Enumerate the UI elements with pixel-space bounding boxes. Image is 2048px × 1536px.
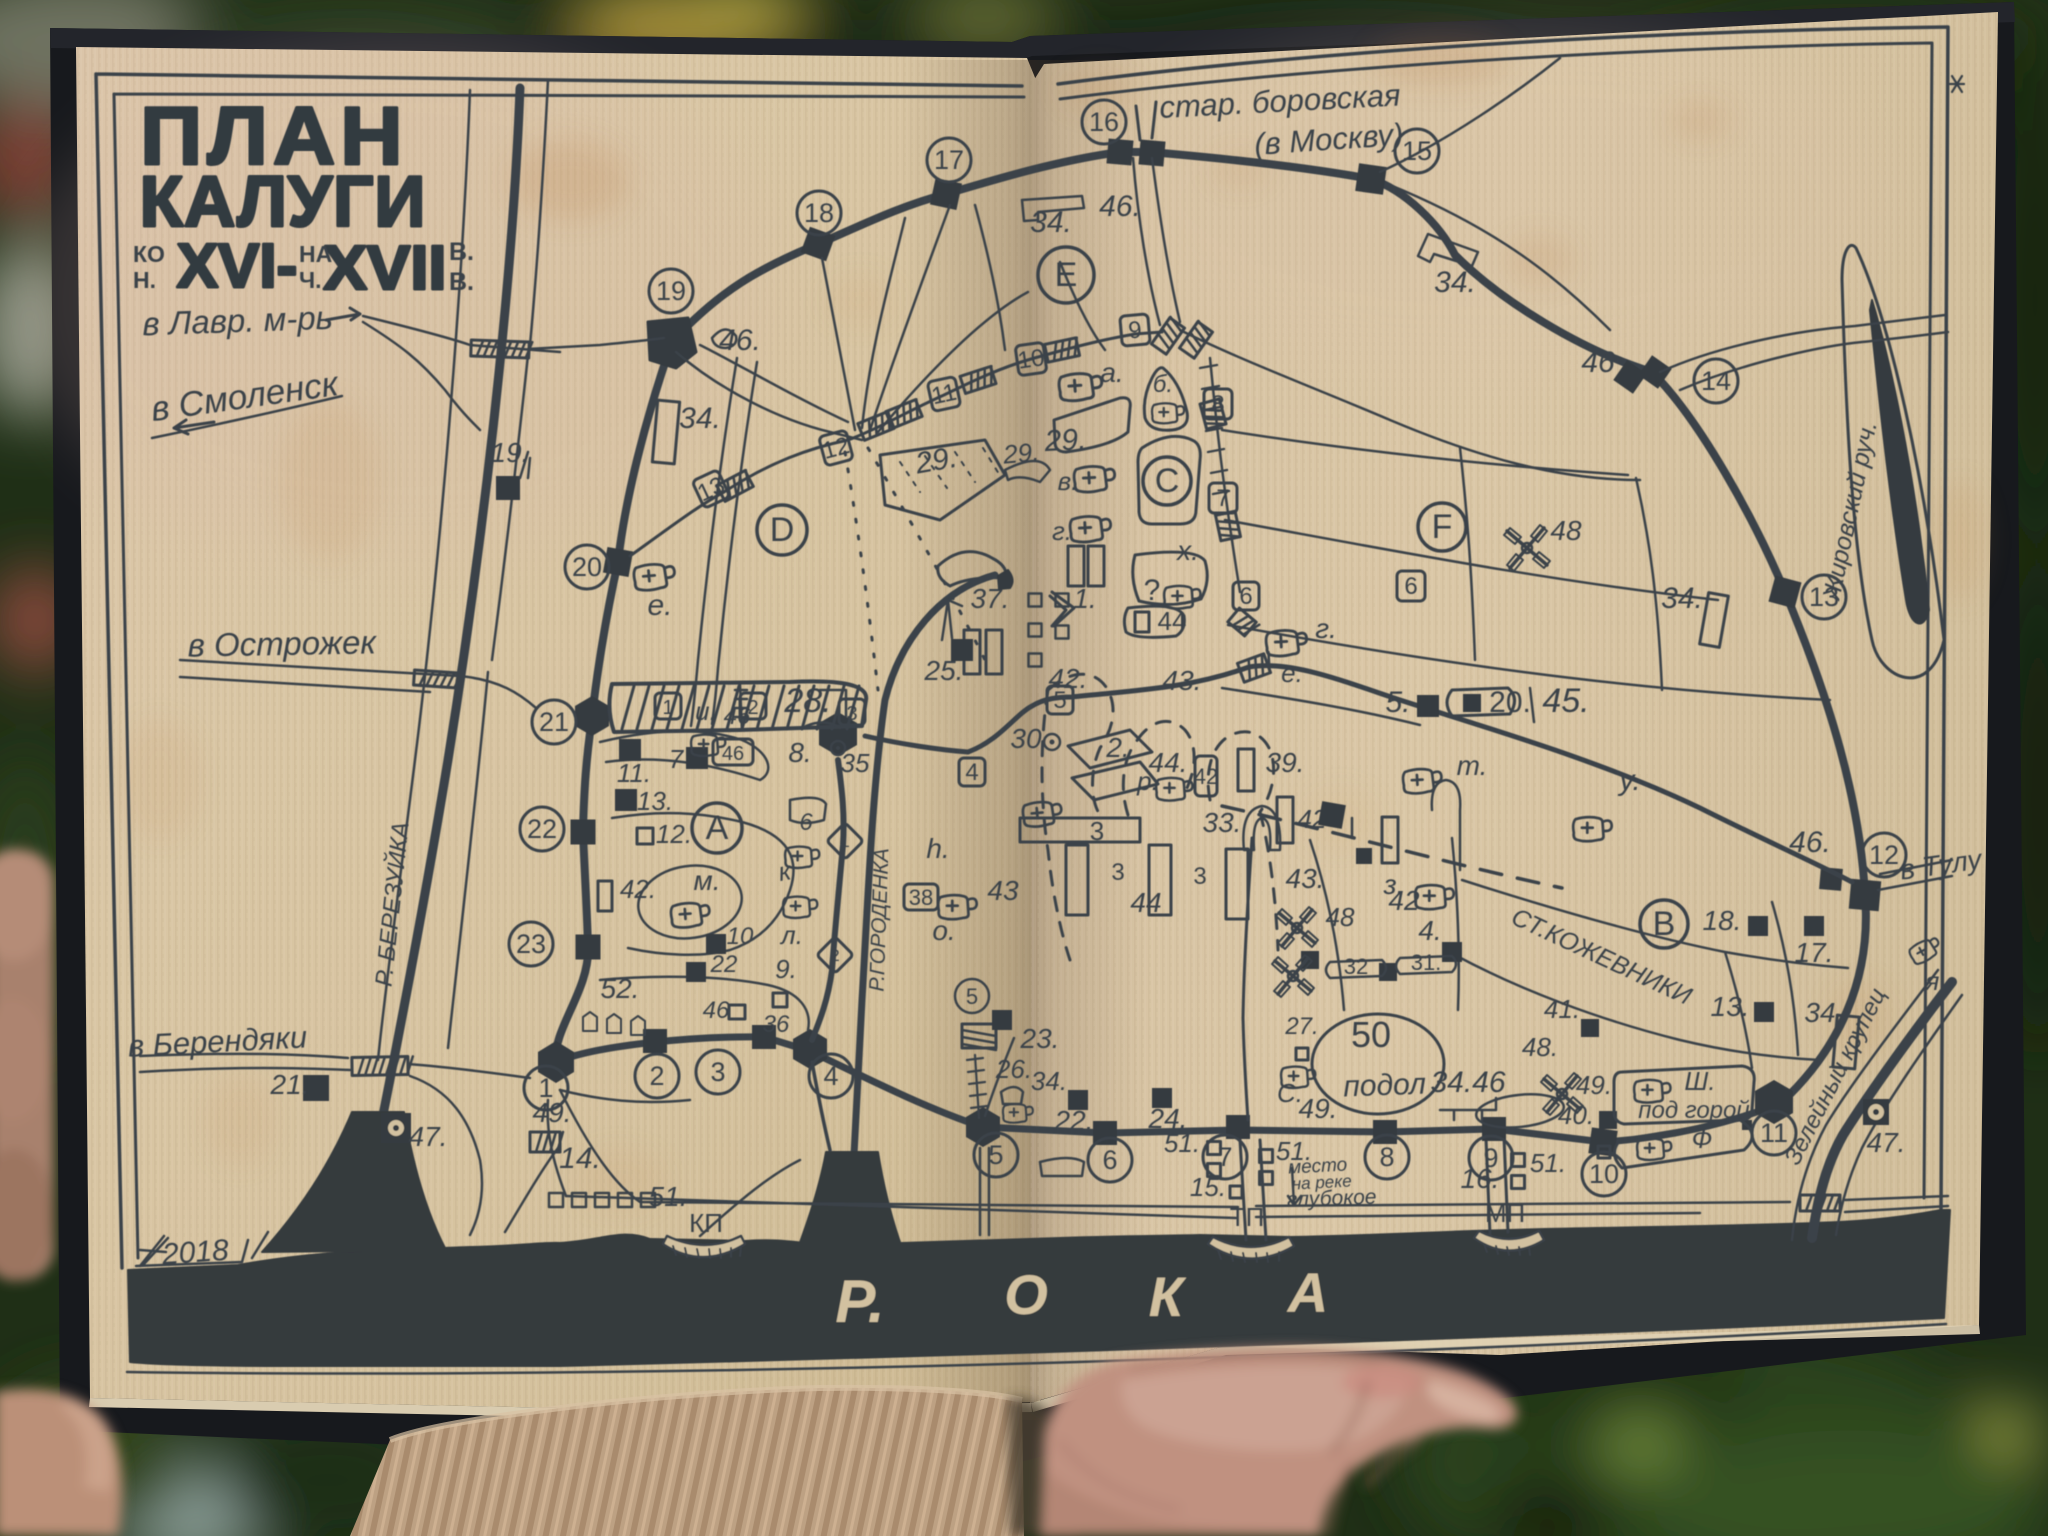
svg-text:51.: 51.	[1276, 1136, 1312, 1166]
svg-text:C: C	[1155, 462, 1180, 500]
svg-text:F: F	[1432, 508, 1453, 546]
svg-text:16.: 16.	[1461, 1163, 1500, 1194]
svg-text:44: 44	[1158, 606, 1187, 636]
svg-text:3: 3	[710, 1057, 725, 1087]
svg-text:л.: л.	[779, 920, 803, 950]
svg-text:МП: МП	[1485, 1198, 1525, 1228]
svg-text:27.: 27.	[1284, 1013, 1318, 1040]
svg-text:м.: м.	[694, 865, 721, 896]
svg-text:39.: 39.	[1266, 747, 1305, 778]
svg-text:А: А	[1286, 1261, 1328, 1324]
svg-text:5.: 5.	[1385, 686, 1410, 719]
svg-text:11: 11	[1760, 1118, 1788, 1148]
svg-text:а.: а.	[1100, 357, 1123, 388]
svg-text:7: 7	[669, 744, 685, 774]
svg-text:21: 21	[539, 707, 569, 737]
svg-text:51.: 51.	[1164, 1128, 1200, 1158]
svg-text:47.: 47.	[1867, 1127, 1906, 1158]
svg-text:12.: 12.	[656, 819, 692, 849]
svg-text:2: 2	[830, 946, 839, 965]
svg-text:8: 8	[1379, 1142, 1394, 1172]
svg-text:h.: h.	[926, 833, 949, 864]
svg-text:3: 3	[1193, 863, 1206, 890]
svg-text:23.: 23.	[1020, 1023, 1060, 1054]
svg-text:6: 6	[1102, 1145, 1117, 1175]
svg-text:15: 15	[1402, 136, 1432, 166]
svg-text:в Острожек: в Острожек	[187, 623, 377, 663]
svg-text:4: 4	[823, 1061, 838, 1091]
svg-text:20: 20	[572, 552, 602, 582]
svg-text:30: 30	[1010, 723, 1042, 754]
svg-text:18.: 18.	[1703, 905, 1742, 936]
svg-text:9: 9	[1127, 316, 1143, 344]
svg-text:25.: 25.	[924, 655, 964, 686]
svg-text:45.: 45.	[1542, 682, 1589, 720]
svg-text:Ш.: Ш.	[1684, 1066, 1715, 1096]
svg-text:29.: 29.	[1001, 437, 1041, 470]
svg-text:49.: 49.	[1299, 1093, 1338, 1124]
svg-text:17: 17	[934, 145, 964, 175]
svg-text:22: 22	[527, 814, 557, 844]
svg-text:9.: 9.	[775, 954, 797, 984]
svg-text:НА: НА	[299, 241, 332, 267]
svg-text:5: 5	[1053, 687, 1066, 714]
svg-text:К: К	[1149, 1265, 1187, 1328]
svg-text:Р.: Р.	[835, 1268, 884, 1335]
svg-text:14.: 14.	[559, 1142, 601, 1175]
svg-text:21.: 21.	[270, 1069, 310, 1100]
svg-text:7: 7	[1216, 485, 1229, 512]
svg-text:4: 4	[965, 759, 978, 786]
svg-text:4.: 4.	[1418, 915, 1441, 946]
svg-text:48: 48	[1326, 902, 1355, 932]
svg-text:17.: 17.	[1795, 937, 1834, 968]
svg-text:28.: 28.	[783, 682, 831, 720]
svg-text:15.: 15.	[1190, 1172, 1226, 1202]
svg-text:13.: 13.	[1711, 991, 1750, 1022]
svg-text:8.: 8.	[788, 737, 811, 768]
svg-text:з.: з.	[1383, 869, 1405, 900]
svg-text:10: 10	[1016, 344, 1046, 374]
svg-text:43.: 43.	[1163, 665, 1202, 696]
svg-text:О: О	[1004, 1263, 1048, 1326]
svg-text:34.46: 34.46	[1430, 1066, 1505, 1099]
svg-text:41.: 41.	[1544, 994, 1580, 1024]
svg-text:1: 1	[840, 832, 849, 851]
svg-text:33.: 33.	[1203, 807, 1242, 838]
svg-text:19: 19	[656, 276, 686, 306]
svg-text:52.: 52.	[601, 973, 640, 1004]
svg-text:е.: е.	[647, 589, 672, 622]
svg-text:1: 1	[662, 697, 673, 719]
svg-text:46: 46	[724, 703, 751, 730]
svg-text:44: 44	[1130, 887, 1161, 918]
svg-text:42.: 42.	[620, 874, 656, 904]
svg-text:в.: в.	[1058, 466, 1079, 496]
svg-text:3: 3	[1090, 816, 1104, 846]
svg-text:14: 14	[1701, 366, 1731, 396]
svg-text:31.: 31.	[1411, 950, 1442, 975]
svg-text:34.: 34.	[1661, 582, 1703, 615]
svg-text:43: 43	[987, 875, 1019, 906]
svg-text:13.: 13.	[637, 786, 673, 816]
svg-text:1.: 1.	[1073, 583, 1096, 614]
svg-text:34.: 34.	[1031, 1066, 1067, 1096]
svg-text:8: 8	[1211, 391, 1224, 418]
svg-text:16: 16	[1089, 107, 1119, 137]
svg-text:6: 6	[1404, 573, 1417, 600]
svg-text:43.: 43.	[1286, 863, 1325, 894]
svg-text:Ч.: Ч.	[299, 267, 322, 293]
svg-text:42: 42	[1194, 764, 1218, 789]
svg-text:18: 18	[804, 198, 834, 228]
svg-text:47.: 47.	[409, 1121, 448, 1152]
svg-text:б.: б.	[1153, 371, 1173, 398]
svg-text:в Лавр. м-рь: в Лавр. м-рь	[142, 299, 334, 343]
svg-text:11.: 11.	[617, 758, 651, 788]
svg-text:я.: я.	[1924, 966, 1946, 996]
svg-text:32: 32	[1344, 954, 1368, 979]
svg-text:6: 6	[1239, 583, 1252, 610]
svg-text:XVII: XVII	[324, 233, 447, 302]
svg-text:44.: 44.	[1149, 747, 1188, 778]
svg-text:т.: т.	[1457, 750, 1488, 781]
svg-text:46.: 46.	[1789, 826, 1831, 859]
svg-text:10: 10	[727, 923, 754, 950]
svg-text:46: 46	[703, 997, 730, 1024]
svg-text:?: ?	[1144, 574, 1161, 607]
svg-text:5: 5	[966, 984, 978, 1009]
svg-text:D: D	[770, 511, 795, 549]
svg-text:и.: и.	[695, 696, 717, 726]
svg-text:48.: 48.	[1522, 1032, 1558, 1062]
svg-text:34: 34	[1804, 997, 1835, 1028]
svg-text:5: 5	[988, 1140, 1003, 1170]
svg-text:49.: 49.	[1576, 1070, 1612, 1100]
svg-text:6: 6	[799, 809, 813, 836]
svg-text:XVI-: XVI-	[177, 232, 298, 301]
svg-text:22: 22	[710, 951, 738, 978]
svg-text:20.: 20.	[1489, 686, 1531, 719]
svg-text:у.: у.	[1617, 764, 1640, 797]
svg-text:КАЛУГИ: КАЛУГИ	[140, 163, 427, 242]
svg-text:о.: о.	[932, 915, 955, 946]
svg-text:3: 3	[846, 703, 857, 725]
svg-text:3: 3	[1111, 859, 1124, 886]
svg-text:46: 46	[1581, 346, 1615, 379]
svg-text:КО: КО	[133, 241, 165, 267]
svg-text:КП: КП	[689, 1208, 723, 1238]
svg-text:е.: е.	[1281, 658, 1303, 688]
svg-text:10: 10	[1589, 1159, 1619, 1189]
svg-text:23: 23	[516, 929, 546, 959]
svg-text:49.: 49.	[533, 1097, 572, 1128]
svg-text:34.: 34.	[679, 402, 721, 435]
svg-text:подол: подол	[1343, 1068, 1427, 1104]
svg-text:34.: 34.	[1434, 266, 1476, 299]
svg-text:46.: 46.	[1099, 190, 1141, 223]
svg-text:46: 46	[722, 743, 744, 765]
svg-text:51.: 51.	[1530, 1148, 1566, 1178]
svg-text:51.: 51.	[649, 1181, 688, 1212]
svg-text:36: 36	[763, 1011, 790, 1038]
svg-text:12: 12	[1869, 840, 1899, 870]
svg-text:г.: г.	[1052, 516, 1072, 546]
svg-text:2: 2	[649, 1061, 664, 1091]
svg-text:Ф: Ф	[1692, 1124, 1713, 1154]
svg-text:Н.: Н.	[133, 267, 156, 293]
svg-text:48: 48	[1550, 515, 1582, 546]
svg-text:50: 50	[1351, 1014, 1391, 1055]
svg-text:26.: 26.	[995, 1054, 1032, 1084]
svg-text:х.: х.	[1175, 535, 1199, 566]
svg-text:38: 38	[909, 885, 933, 910]
svg-text:г.: г.	[1315, 613, 1337, 644]
svg-text:35: 35	[841, 748, 870, 778]
